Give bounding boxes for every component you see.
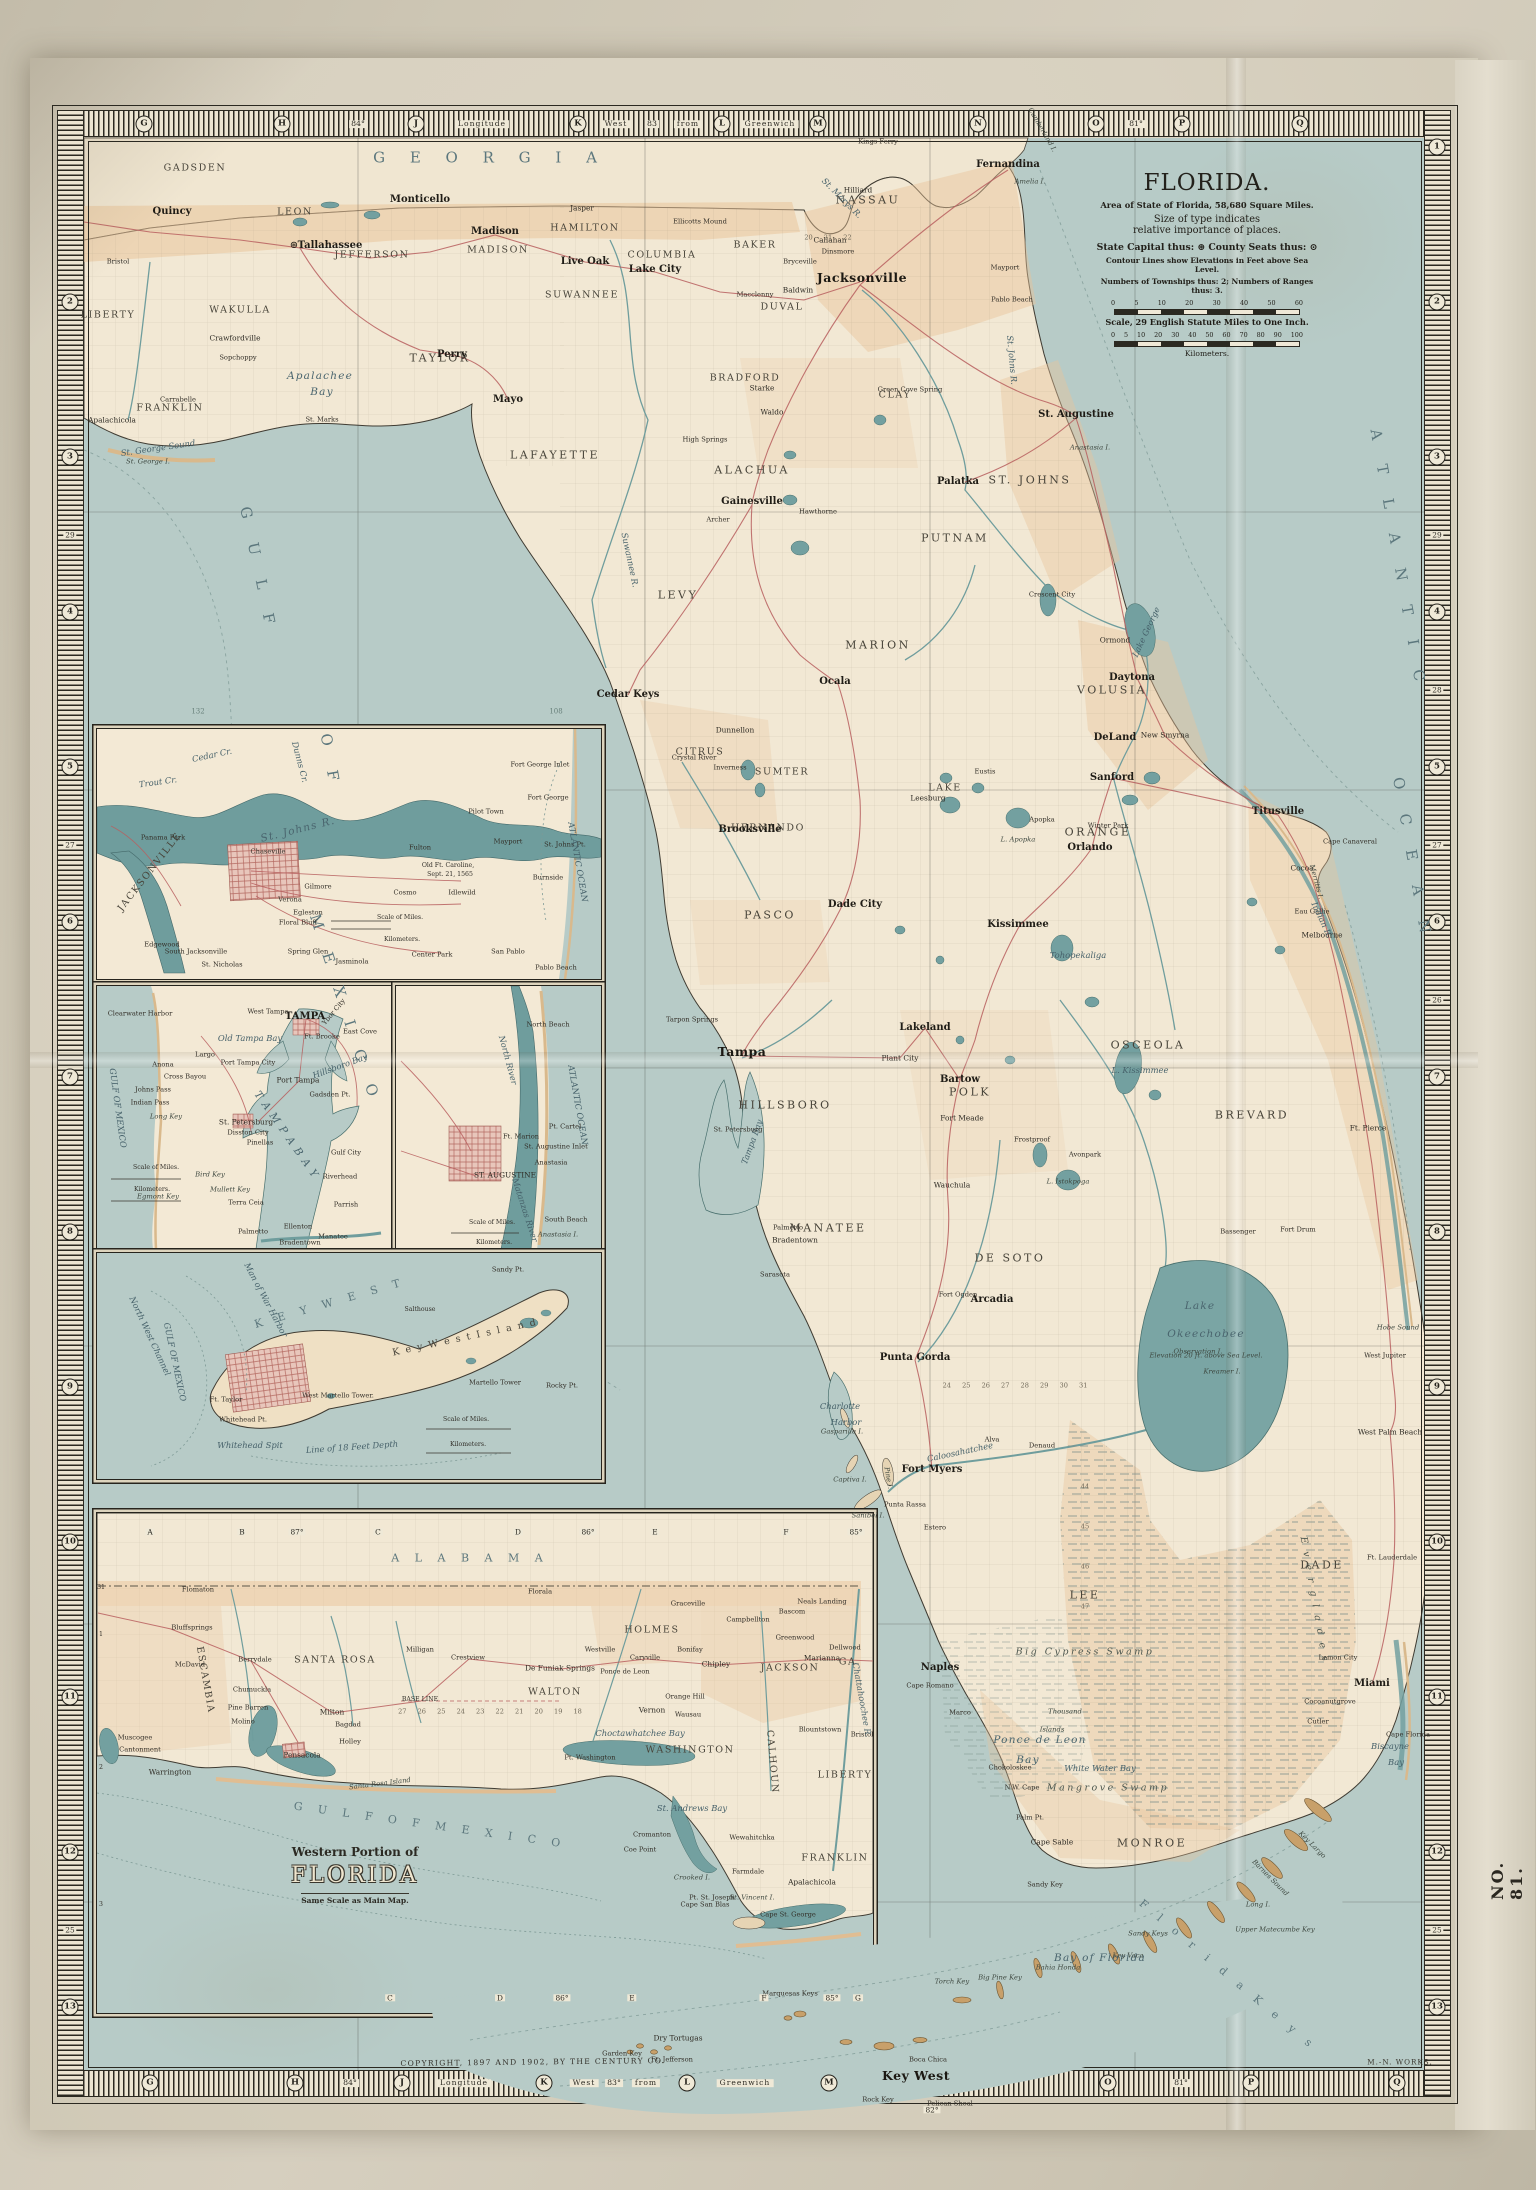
map-sheet-florida: FLORIDA. Area of State of Florida, 58,68… (0, 0, 1536, 2190)
engraver-credit: M.-N. WORKS. (1367, 2058, 1432, 2067)
florida-keys-overflow (0, 0, 1536, 2190)
sheet-number: NO. 81. (1488, 1852, 1526, 1900)
